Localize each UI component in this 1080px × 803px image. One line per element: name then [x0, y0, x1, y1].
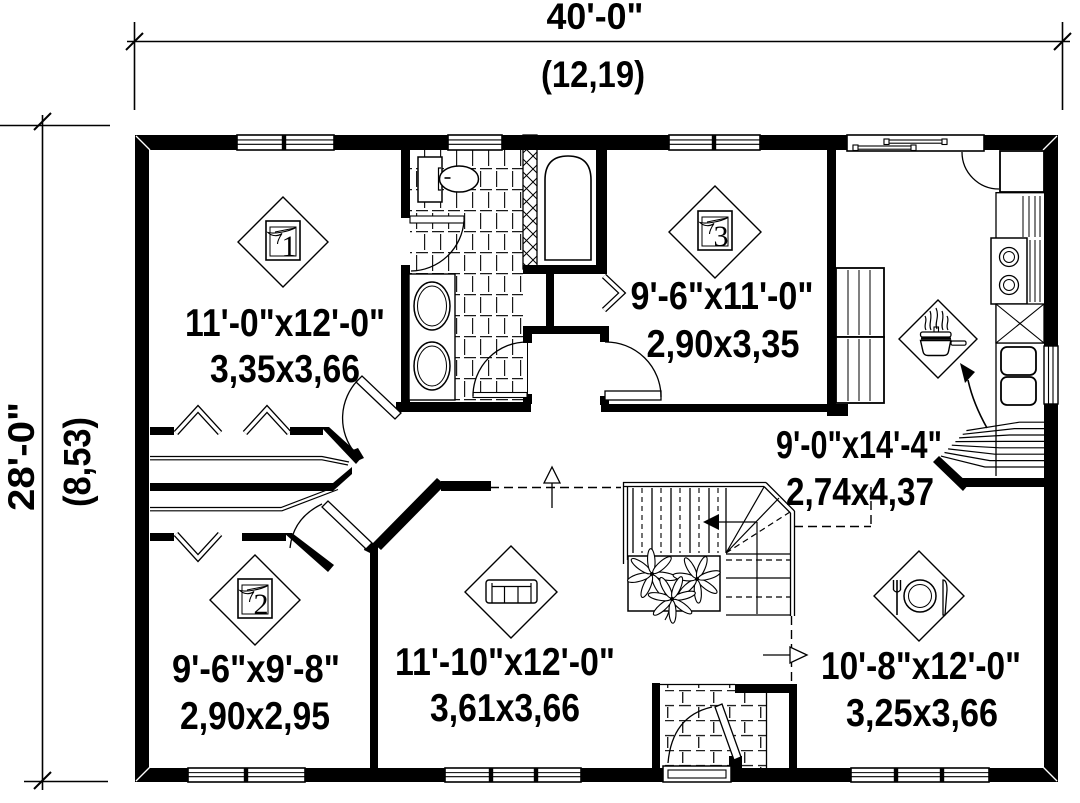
svg-text:40'-0": 40'-0" — [547, 0, 644, 37]
svg-text:3,35x3,66: 3,35x3,66 — [210, 348, 360, 391]
svg-text:28'-0": 28'-0" — [1, 402, 42, 511]
svg-text:9'-6"x11'-0": 9'-6"x11'-0" — [631, 275, 814, 318]
svg-text:3,61x3,66: 3,61x3,66 — [430, 687, 580, 730]
svg-text:2: 2 — [254, 588, 269, 621]
svg-text:9'-6"x9'-8": 9'-6"x9'-8" — [172, 648, 340, 691]
svg-text:2,90x3,35: 2,90x3,35 — [647, 323, 800, 366]
svg-text:3,25x3,66: 3,25x3,66 — [846, 692, 998, 735]
svg-text:(8,53): (8,53) — [57, 417, 99, 507]
svg-text:2,74x4,37: 2,74x4,37 — [786, 471, 934, 514]
svg-text:1: 1 — [282, 230, 297, 263]
svg-text:3: 3 — [714, 220, 729, 253]
svg-text:(12,19): (12,19) — [541, 54, 645, 95]
svg-text:9'-0"x14'-4": 9'-0"x14'-4" — [776, 424, 942, 467]
svg-text:2,90x2,95: 2,90x2,95 — [180, 695, 330, 738]
svg-text:10'-8"x12'-0": 10'-8"x12'-0" — [821, 645, 1021, 688]
svg-text:11'-10"x12'-0": 11'-10"x12'-0" — [395, 641, 615, 684]
svg-text:11'-0"x12'-0": 11'-0"x12'-0" — [185, 302, 385, 345]
